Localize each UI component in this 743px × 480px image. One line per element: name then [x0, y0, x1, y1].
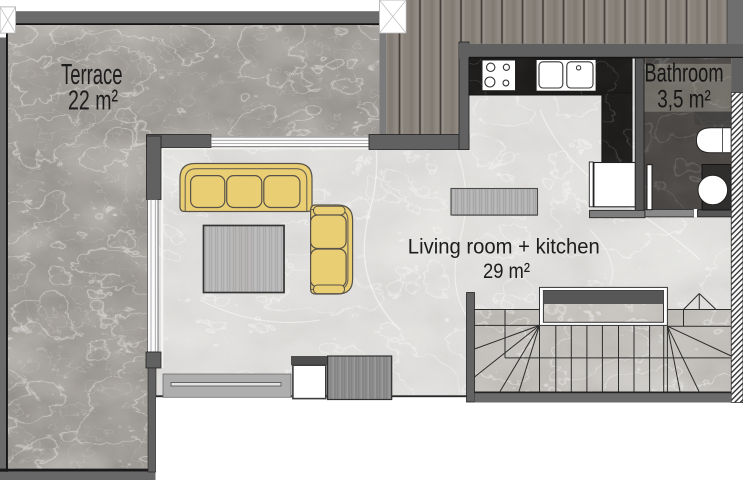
svg-text:29 m²: 29 m² — [483, 259, 530, 283]
svg-text:Living room + kitchen: Living room + kitchen — [408, 235, 600, 259]
svg-text:Bathroom: Bathroom — [645, 58, 724, 88]
svg-text:22 m²: 22 m² — [68, 85, 118, 116]
svg-text:3,5 m²: 3,5 m² — [657, 86, 711, 114]
